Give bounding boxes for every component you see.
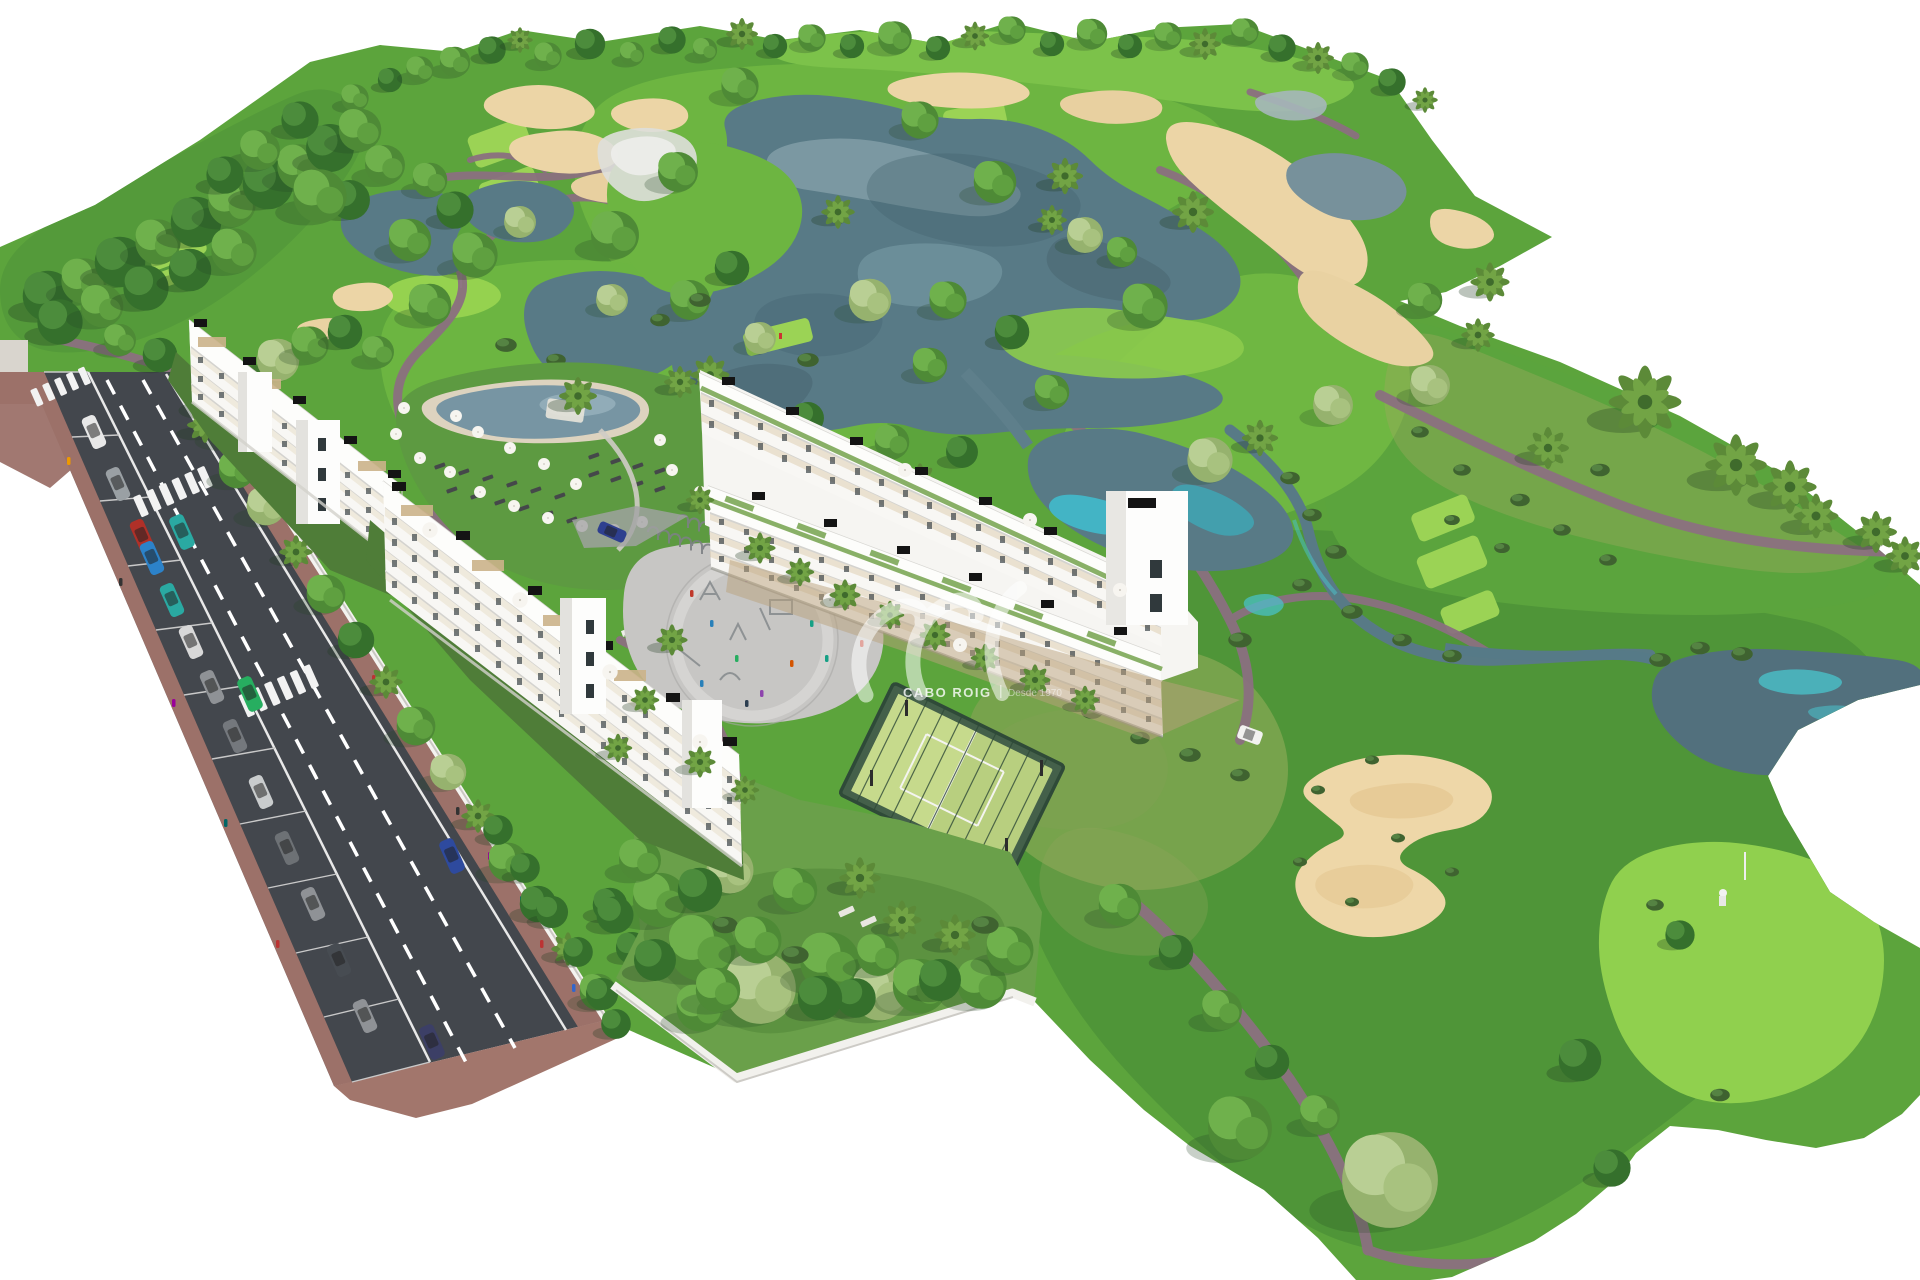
svg-text:Desde 1970: Desde 1970 xyxy=(1008,688,1062,699)
svg-text:CABO ROIG: CABO ROIG xyxy=(903,685,992,700)
